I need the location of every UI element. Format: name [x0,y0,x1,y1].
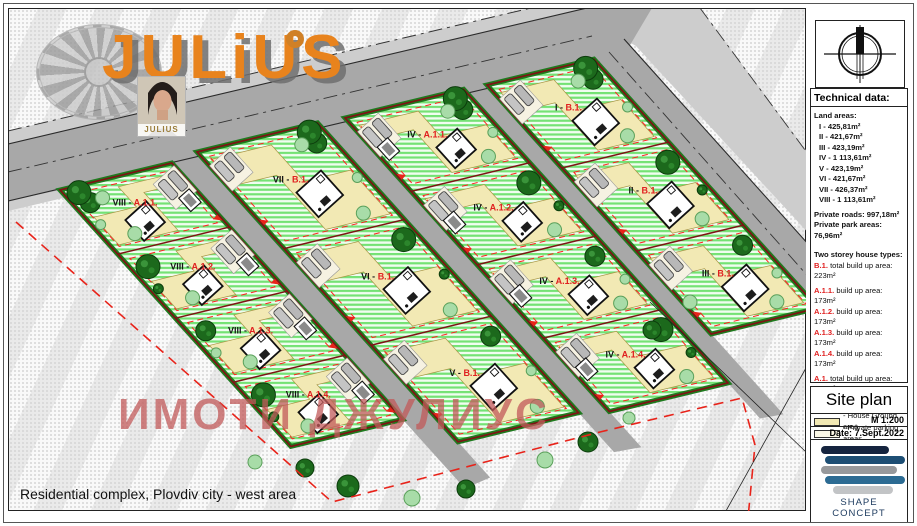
land-area-item: VI - 421,67m² [814,174,905,185]
technical-data-box: Technical data: Land areas: I - 425,81m²… [810,88,908,383]
logo-ring-icon [286,30,304,48]
land-area-item: III - 423,19m² [814,143,905,154]
site-plan-sheet: VIII - A.1.1.VIII - A.1.2.VIII - A.1.3.V… [0,0,917,526]
land-area-item: VII - 426,37m² [814,185,905,196]
agent-photo: JULIUS [137,76,186,137]
private-roads: Private roads: 997,18m² [814,210,905,221]
north-arrow [815,20,905,88]
land-area-item: IV - 1 113,61m² [814,153,905,164]
scale-label: M 1:200 [810,414,908,427]
land-areas-heading: Land areas: [814,111,905,122]
house-types-heading: Two storey house types: [814,250,905,261]
land-area-item: VIII - 1 113,61m² [814,195,905,206]
logo-bar [825,476,905,484]
date-label: Date: 7.Sept.2022 [810,427,908,440]
land-area-item: I - 425,81m² [814,122,905,133]
sheet-title: Residential complex, Plovdiv city - west… [20,486,296,502]
house-type-a: A.1.3. build up area: 173m² [814,328,905,349]
photo-caption: JULIUS [138,124,185,136]
logo-bar [821,446,889,454]
company-name: SHAPE CONCEPT [815,497,903,519]
logo-bar [825,456,905,464]
technical-data-title: Technical data: [811,89,907,107]
house-type-b1: B.1. total build up area: 223m² [814,261,905,282]
land-area-item: V - 423,19m² [814,164,905,175]
house-type-a: A.1.2. build up area: 173m² [814,307,905,328]
house-type-a: A.1.1. build up area: 173m² [814,286,905,307]
private-park: Private park areas: 76,96m² [814,220,905,241]
north-arrow-icon [816,21,904,87]
company-logo: SHAPE CONCEPT [810,440,908,523]
logo-bar [821,466,897,474]
watermark-text: ИМОТИ ДЖУЛИУС [118,390,550,440]
land-area-item: II - 421,67m² [814,132,905,143]
logo-bar [833,486,893,494]
title-block: Site plan M 1:200 Date: 7.Sept.2022 SHAP… [810,386,908,523]
house-type-a: A.1.4. build up area: 173m² [814,349,905,370]
right-panel: Technical data: Land areas: I - 425,81m²… [806,8,910,520]
sheet-name: Site plan [810,386,908,414]
